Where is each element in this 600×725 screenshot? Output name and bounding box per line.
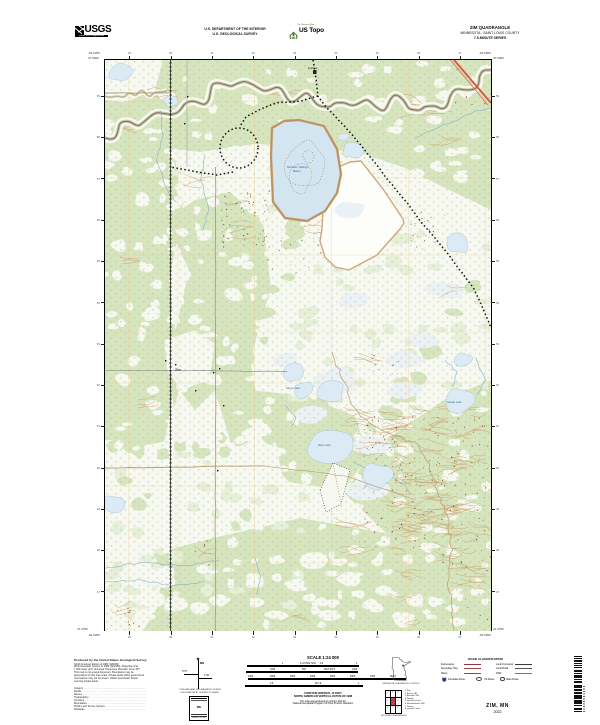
svg-text:Basin: Basin [293, 169, 301, 173]
svg-text:Stone Lake: Stone Lake [286, 386, 301, 390]
svg-text:Dark Lake: Dark Lake [318, 443, 331, 447]
svg-text:Forbes: Forbes [308, 66, 318, 70]
svg-text:Sandy Lake: Sandy Lake [447, 400, 462, 404]
svg-text:Zim: Zim [175, 368, 181, 372]
